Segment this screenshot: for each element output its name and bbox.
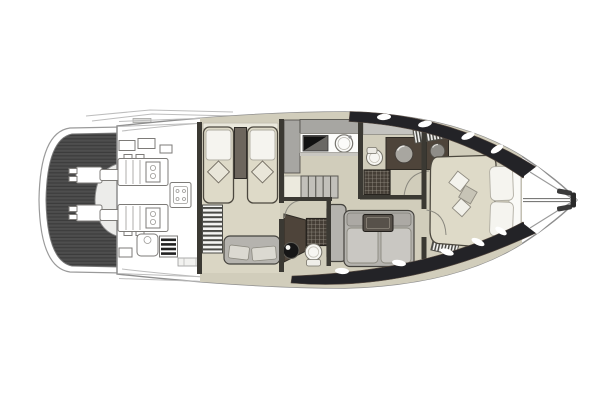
bed-pillow xyxy=(206,130,231,160)
stair-tread xyxy=(331,176,338,198)
sofa-cushion xyxy=(347,228,378,263)
floor-plan-drawing xyxy=(0,0,600,400)
shower-grid xyxy=(307,219,328,246)
faucet-icon xyxy=(348,135,351,138)
stair-tread xyxy=(316,176,323,198)
steps-grille xyxy=(203,205,223,253)
sofa-cushion xyxy=(381,228,411,263)
guest-cabin xyxy=(201,122,280,273)
salon xyxy=(327,205,414,267)
sofa-tray xyxy=(363,215,393,232)
equipment-box xyxy=(160,145,172,153)
bed-pillow xyxy=(489,166,513,201)
washbasin-icon xyxy=(395,145,413,163)
day-head xyxy=(283,199,329,266)
washbasin-icon xyxy=(283,243,299,259)
counter-edge xyxy=(300,153,360,157)
stair-landing xyxy=(284,176,301,198)
guest-seat xyxy=(224,236,280,264)
basin-highlight xyxy=(286,245,291,250)
twin-bed-starboard xyxy=(248,127,278,203)
stair-tread xyxy=(308,176,315,198)
twin-bed-port xyxy=(204,127,234,203)
swim-platform xyxy=(39,127,122,273)
yacht-floor-plan xyxy=(0,0,600,400)
nightstand xyxy=(235,128,247,179)
gearbox-console xyxy=(170,183,191,208)
engine-port xyxy=(118,155,168,186)
toilet-icon xyxy=(305,244,322,266)
generator xyxy=(137,234,178,257)
seat-cushion xyxy=(252,246,277,261)
stair-tread xyxy=(301,176,308,198)
equipment-box xyxy=(119,141,135,151)
prop-shaft-port xyxy=(100,170,120,181)
equipment-box xyxy=(119,248,132,257)
engine-starboard xyxy=(118,205,168,236)
shower-grid xyxy=(364,170,390,195)
tall-cabinet xyxy=(284,120,300,173)
stair-tread xyxy=(323,176,330,198)
seat-cushion xyxy=(228,245,249,260)
bed-pillow xyxy=(250,130,275,160)
equipment-box xyxy=(138,139,155,149)
prop-shaft-starboard xyxy=(100,210,120,221)
